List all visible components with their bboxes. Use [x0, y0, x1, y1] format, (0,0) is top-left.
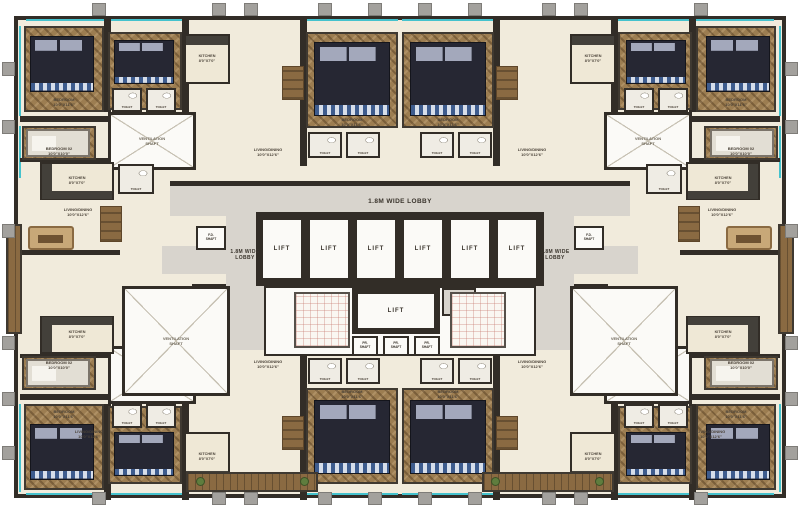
toilet-room-mirror-x: TOILET — [458, 132, 492, 158]
room-label-mirror-x: LIVING/DINING 10'0"X12'6" — [678, 428, 744, 440]
window-line-mirror-x — [779, 26, 781, 116]
room-label-mirror-y: LIVING/DINING 10'0"X12'6" — [236, 358, 300, 370]
pressurization-shaft: PR. SHAFT — [352, 336, 378, 356]
column-stub — [318, 492, 332, 505]
kitchen-counter-mirror-xy — [688, 317, 758, 325]
dining-table-mirror-x — [496, 66, 518, 100]
column-stub — [2, 336, 15, 350]
lift-room: LIFT — [357, 220, 395, 278]
column-stub — [244, 3, 258, 16]
lobby-entry — [162, 246, 226, 274]
lobby-label: 1.8M WIDE LOBBY — [330, 194, 470, 208]
column-stub-mirror-x — [542, 3, 556, 16]
column-stub-mirror-x — [468, 3, 482, 16]
sofa — [28, 226, 74, 250]
toilet-room-mirror-x: TOILET — [646, 164, 682, 194]
kitchen-counter-mirror-x — [688, 191, 758, 199]
wall — [20, 250, 120, 255]
room-label: LIVING/DINING 10'0"X12'6" — [50, 206, 106, 218]
dining-table — [282, 66, 304, 100]
room-label-mirror-xy: BEDROOM 10'0"X11'6" — [700, 408, 772, 420]
double-bed — [314, 42, 390, 116]
staircase-mirror-x — [450, 292, 506, 348]
lobby-label: 1.8M WIDE LOBBY — [221, 244, 269, 266]
double-bed-mirror-x — [626, 40, 686, 84]
toilet-room-mirror-xy: TOILET — [658, 404, 688, 428]
column-stub-mirror-x — [574, 3, 588, 16]
room-label-mirror-y: BEDROOM 02 10'0"X10'0" — [24, 360, 94, 370]
double-bed — [114, 40, 174, 84]
toilet-room: TOILET — [118, 164, 154, 194]
double-bed — [30, 36, 94, 92]
column-stub — [2, 120, 15, 134]
lobby-label-mirror-x: 1.8M WIDE LOBBY — [531, 244, 579, 266]
room-label-mirror-xy: BEDROOM 02 10'0"X10'0" — [706, 360, 776, 370]
column-stub-mirror-x — [574, 492, 588, 505]
column-stub-mirror-x — [694, 492, 708, 505]
double-bed-mirror-xy — [410, 400, 486, 474]
lift-room: LIFT — [404, 220, 442, 278]
double-bed-mirror-x — [706, 36, 770, 92]
toilet-room-mirror-y: TOILET — [308, 358, 342, 384]
column-stub — [368, 3, 382, 16]
staircase — [294, 292, 350, 348]
kitchen-counter-mirror-x — [572, 36, 614, 45]
kitchen-counter — [186, 36, 228, 45]
double-bed-mirror-y — [314, 400, 390, 474]
column-stub-mirror-x — [785, 446, 798, 460]
lobby-entry-mirror-x — [574, 246, 638, 274]
column-stub — [92, 3, 106, 16]
room-label: BEDROOM 02 10'0"X10'0" — [24, 146, 94, 156]
pressurization-shaft: PR. SHAFT — [414, 336, 440, 356]
window-line-mirror-x — [779, 126, 781, 178]
window-line — [108, 19, 182, 21]
toilet-room-mirror-y: TOILET — [112, 404, 142, 428]
ventilation-shaft: VENTILATION SHAFT — [108, 112, 196, 170]
wall-mirror-x — [680, 250, 780, 255]
toilet-room-mirror-y: TOILET — [346, 358, 380, 384]
dining-table-mirror-y — [282, 416, 304, 450]
balcony-deck — [186, 472, 318, 492]
planter-mirror-x — [491, 477, 500, 486]
toilet-room-mirror-x: TOILET — [420, 132, 454, 158]
pressurization-shaft: PR. SHAFT — [383, 336, 409, 356]
ventilation-shaft-mirror-x: VENTILATION SHAFT — [570, 286, 678, 396]
dining-table-mirror-xy — [496, 416, 518, 450]
column-stub-mirror-x — [694, 3, 708, 16]
planter — [196, 477, 205, 486]
floor-plan: LIFTLIFTLIFTLIFTLIFTLIFTLIFTFIRE LOBBYPR… — [0, 0, 800, 508]
column-stub — [368, 492, 382, 505]
column-stub — [2, 224, 15, 238]
lift-room: LIFT — [310, 220, 348, 278]
column-stub — [318, 3, 332, 16]
lift-room-center: LIFT — [358, 294, 434, 328]
column-stub-mirror-x — [542, 492, 556, 505]
column-stub — [212, 492, 226, 505]
balcony-deck — [6, 224, 22, 334]
window-line — [19, 26, 21, 116]
toilet-room-mirror-xy: TOILET — [458, 358, 492, 384]
room-label-mirror-x: BEDROOM 02 10'0"X10'0" — [706, 146, 776, 156]
column-stub — [244, 492, 258, 505]
column-stub — [2, 62, 15, 76]
room-label: BEDROOM 10'0"X11'6" — [28, 96, 100, 108]
room-label-mirror-xy: LIVING/DINING 10'0"X12'6" — [500, 358, 564, 370]
window-line — [19, 126, 21, 178]
room-label-mirror-xy: BEDROOM 10'0"X11'6" — [410, 389, 486, 399]
room-label-mirror-x: BEDROOM 10'0"X11'6" — [410, 117, 486, 127]
column-stub-mirror-x — [785, 224, 798, 238]
window-line — [19, 404, 21, 492]
toilet-room-mirror-xy: TOILET — [624, 404, 654, 428]
column-stub-mirror-x — [785, 392, 798, 406]
toilet-room-mirror-y: TOILET — [146, 404, 176, 428]
toilet-room: TOILET — [146, 88, 176, 112]
room-label: LIVING/DINING 10'0"X12'6" — [236, 146, 300, 158]
room-label: LIVING/DINING 10'0"X12'6" — [56, 428, 122, 440]
room-label-mirror-x: LIVING/DINING 10'0"X12'6" — [694, 206, 750, 218]
room-label-mirror-y: BEDROOM 10'0"X11'6" — [314, 389, 390, 399]
window-line-mirror-x — [618, 493, 692, 495]
window-line — [108, 493, 182, 495]
window-line — [26, 19, 104, 21]
toilet-room: TOILET — [346, 132, 380, 158]
column-stub-mirror-x — [785, 62, 798, 76]
ventilation-shaft-mirror-x: VENTILATION SHAFT — [604, 112, 692, 170]
sofa-mirror-x — [726, 226, 772, 250]
planter-mirror-x — [595, 477, 604, 486]
window-line-mirror-x — [618, 19, 692, 21]
kitchen-counter-mirror-y — [42, 317, 112, 325]
toilet-room: TOILET — [308, 132, 342, 158]
window-line-mirror-x — [696, 19, 774, 21]
room-label-mirror-y: BEDROOM 10'0"X11'6" — [28, 408, 100, 420]
toilet-room-mirror-x: TOILET — [658, 88, 688, 112]
window-line — [306, 19, 398, 21]
planter — [300, 477, 309, 486]
column-stub — [212, 3, 226, 16]
wall — [170, 181, 630, 186]
double-bed-mirror-y — [114, 432, 174, 476]
column-stub-mirror-x — [468, 492, 482, 505]
column-stub-mirror-x — [785, 120, 798, 134]
double-bed-mirror-xy — [626, 432, 686, 476]
column-stub-mirror-x — [785, 336, 798, 350]
room-label-mirror-x: LIVING/DINING 10'0"X12'6" — [500, 146, 564, 158]
window-line-mirror-x — [779, 404, 781, 492]
lift-room: LIFT — [451, 220, 489, 278]
toilet-room-mirror-x: TOILET — [624, 88, 654, 112]
column-stub — [2, 446, 15, 460]
kitchen-counter — [42, 191, 112, 199]
column-stub-mirror-x — [418, 3, 432, 16]
toilet-room-mirror-xy: TOILET — [420, 358, 454, 384]
room-label: BEDROOM 10'0"X11'6" — [314, 117, 390, 127]
ventilation-shaft: VENTILATION SHAFT — [122, 286, 230, 396]
column-stub — [92, 492, 106, 505]
double-bed-mirror-x — [410, 42, 486, 116]
window-line-mirror-x — [402, 19, 494, 21]
column-stub-mirror-x — [418, 492, 432, 505]
room-label-mirror-x: BEDROOM 10'0"X11'6" — [700, 96, 772, 108]
column-stub — [2, 392, 15, 406]
toilet-room: TOILET — [112, 88, 142, 112]
balcony-deck-mirror-x — [778, 224, 794, 334]
